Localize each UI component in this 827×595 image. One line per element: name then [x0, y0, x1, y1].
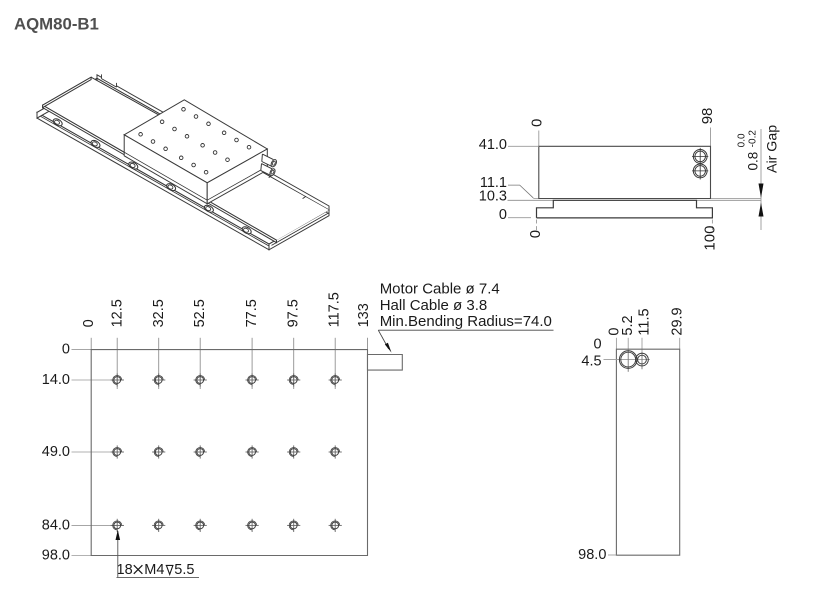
svg-text:M4: M4	[144, 562, 164, 578]
svg-text:AQM80-B1: AQM80-B1	[14, 14, 99, 33]
svg-text:14.0: 14.0	[42, 372, 70, 388]
svg-text:12.5: 12.5	[109, 299, 125, 327]
svg-text:41.0: 41.0	[479, 137, 507, 153]
svg-text:4.5: 4.5	[581, 354, 601, 370]
svg-text:77.5: 77.5	[244, 299, 260, 327]
svg-text:0: 0	[62, 341, 70, 357]
svg-text:98.0: 98.0	[578, 547, 606, 563]
svg-text:0: 0	[81, 319, 97, 327]
svg-text:133: 133	[356, 303, 372, 327]
svg-text:0: 0	[529, 119, 546, 127]
svg-text:Motor Cable ø 7.4: Motor Cable ø 7.4	[380, 281, 500, 298]
svg-text:-0.2: -0.2	[748, 130, 759, 148]
svg-text:10.3: 10.3	[479, 189, 507, 205]
svg-text:11.5: 11.5	[637, 308, 653, 335]
svg-text:49.0: 49.0	[42, 444, 70, 460]
svg-text:0: 0	[499, 207, 507, 223]
svg-text:98.0: 98.0	[42, 548, 70, 564]
svg-text:Min.Bending Radius=74.0: Min.Bending Radius=74.0	[380, 313, 552, 330]
svg-text:5.2: 5.2	[620, 315, 636, 335]
svg-text:18: 18	[117, 562, 133, 578]
svg-text:29.9: 29.9	[670, 307, 686, 335]
svg-text:0.8: 0.8	[746, 152, 761, 171]
svg-text:32.5: 32.5	[151, 299, 167, 327]
svg-text:Hall Cable ø 3.8: Hall Cable ø 3.8	[380, 297, 488, 314]
svg-text:97.5: 97.5	[285, 299, 301, 327]
svg-text:100: 100	[702, 226, 719, 251]
svg-text:98: 98	[699, 108, 716, 125]
svg-text:117.5: 117.5	[327, 292, 343, 327]
svg-text:Air Gap: Air Gap	[765, 125, 781, 173]
svg-text:5.5: 5.5	[174, 562, 194, 578]
svg-text:84.0: 84.0	[42, 518, 70, 534]
svg-text:0: 0	[527, 230, 544, 238]
svg-text:0.0: 0.0	[737, 133, 748, 147]
svg-text:52.5: 52.5	[192, 299, 208, 327]
svg-text:0: 0	[594, 337, 602, 353]
